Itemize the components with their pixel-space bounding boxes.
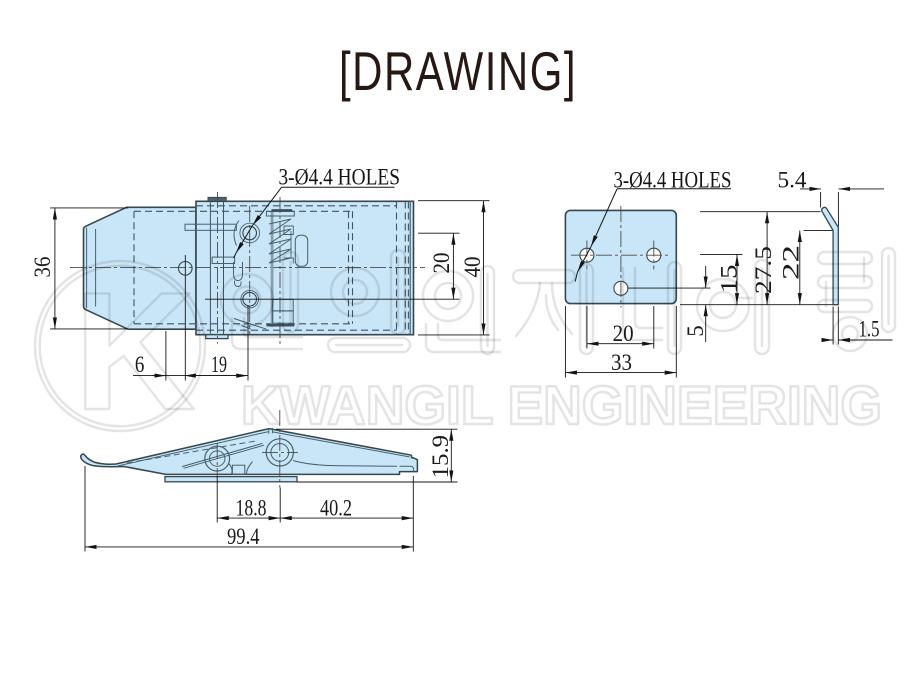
svg-text:18.8: 18.8 <box>236 496 267 521</box>
svg-text:36: 36 <box>30 257 55 278</box>
svg-text:5: 5 <box>683 325 708 337</box>
svg-text:3-Ø4.4 HOLES: 3-Ø4.4 HOLES <box>279 165 401 190</box>
svg-text:[DRAWING]: [DRAWING] <box>339 40 577 102</box>
svg-text:33: 33 <box>611 350 632 375</box>
svg-text:19: 19 <box>211 352 227 377</box>
svg-text:5.4: 5.4 <box>778 168 808 193</box>
svg-text:40.2: 40.2 <box>320 496 352 521</box>
svg-text:99.4: 99.4 <box>227 524 260 549</box>
svg-text:15.9: 15.9 <box>428 435 453 479</box>
svg-text:KWANGIL ENGINEERING: KWANGIL ENGINEERING <box>241 374 882 436</box>
svg-text:K: K <box>74 257 195 445</box>
svg-text:22: 22 <box>779 245 804 280</box>
